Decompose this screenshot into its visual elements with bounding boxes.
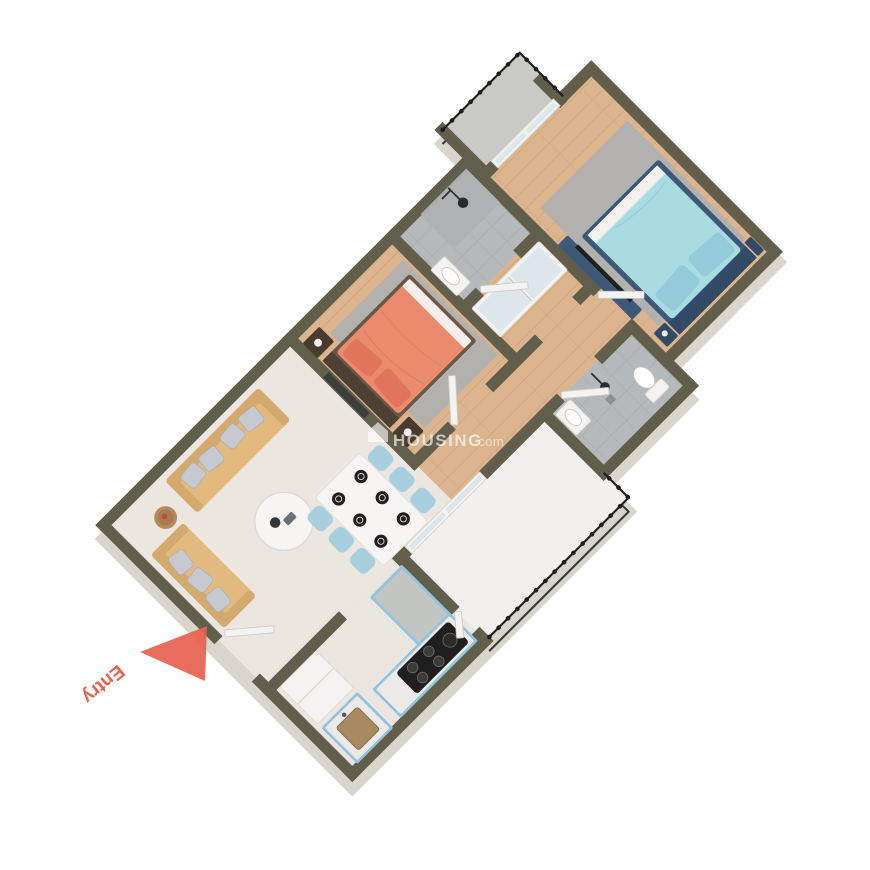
watermark-suffix: .com — [474, 434, 504, 449]
floorplan-3d-render: HOUSING .com Entry — [0, 0, 870, 870]
entry-marker: Entry — [77, 626, 207, 708]
entry-label: Entry — [77, 660, 128, 708]
entry-arrow-icon — [140, 626, 207, 681]
floorplan-stage: HOUSING .com Entry — [0, 0, 870, 870]
watermark-brand: HOUSING — [393, 431, 483, 450]
bedroom-2-door — [598, 291, 644, 298]
